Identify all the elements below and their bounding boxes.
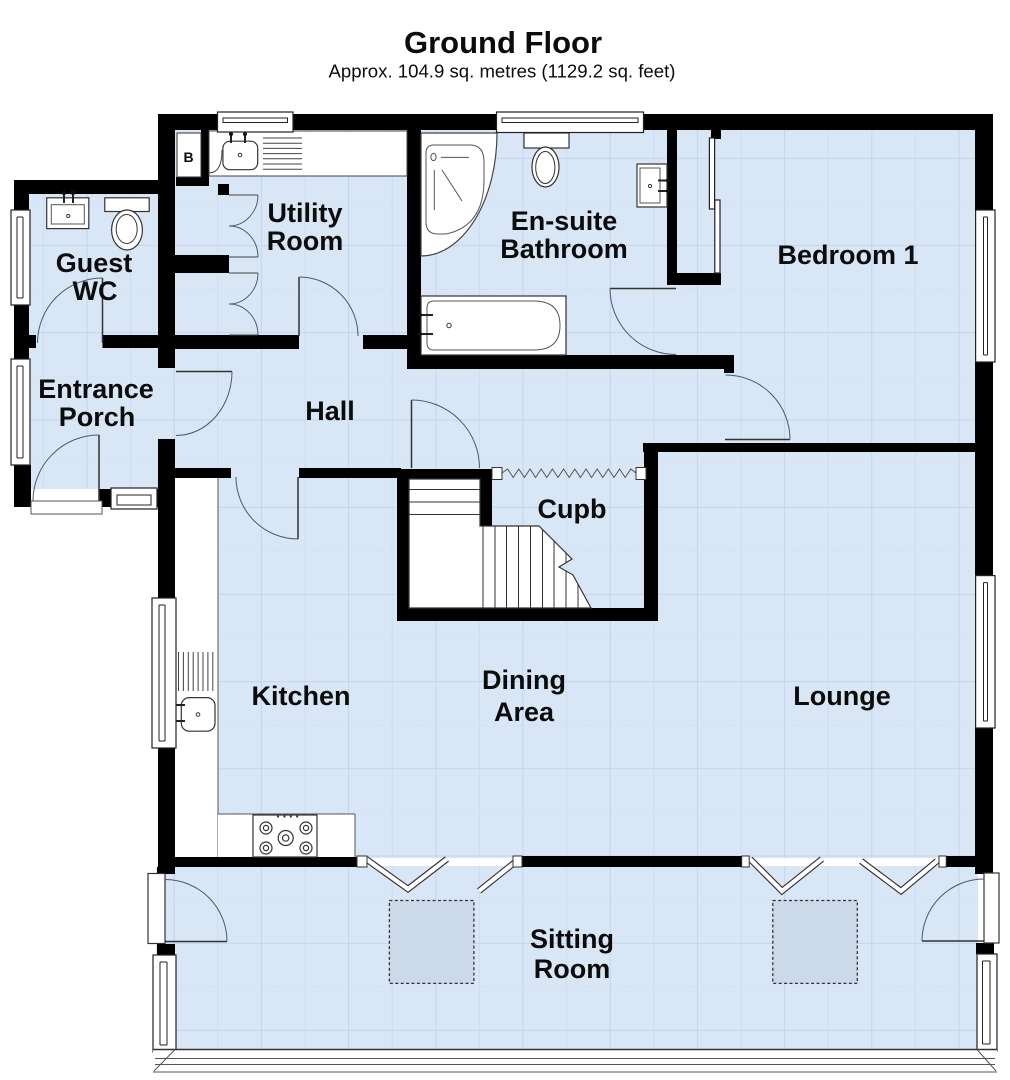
svg-text:WC: WC	[73, 276, 118, 306]
svg-text:Area: Area	[494, 697, 555, 727]
svg-text:Bathroom: Bathroom	[500, 234, 628, 264]
svg-text:Guest: Guest	[56, 248, 133, 278]
svg-text:Room: Room	[534, 954, 611, 984]
svg-text:Room: Room	[267, 226, 344, 256]
svg-text:Cupb: Cupb	[538, 494, 607, 524]
svg-text:Hall: Hall	[305, 396, 355, 426]
svg-text:Sitting: Sitting	[530, 924, 614, 954]
svg-text:Lounge: Lounge	[793, 681, 890, 711]
svg-text:Kitchen: Kitchen	[251, 681, 350, 711]
svg-text:En-suite: En-suite	[511, 206, 618, 236]
svg-text:Dining: Dining	[482, 665, 566, 695]
svg-text:Porch: Porch	[59, 402, 136, 432]
svg-text:Bedroom 1: Bedroom 1	[777, 240, 918, 270]
svg-text:Approx. 104.9 sq. metres (1129: Approx. 104.9 sq. metres (1129.2 sq. fee…	[329, 61, 676, 82]
svg-text:B: B	[183, 149, 193, 165]
svg-text:Entrance: Entrance	[38, 374, 154, 404]
svg-text:Ground Floor: Ground Floor	[404, 25, 602, 60]
svg-text:Utility: Utility	[267, 198, 342, 228]
